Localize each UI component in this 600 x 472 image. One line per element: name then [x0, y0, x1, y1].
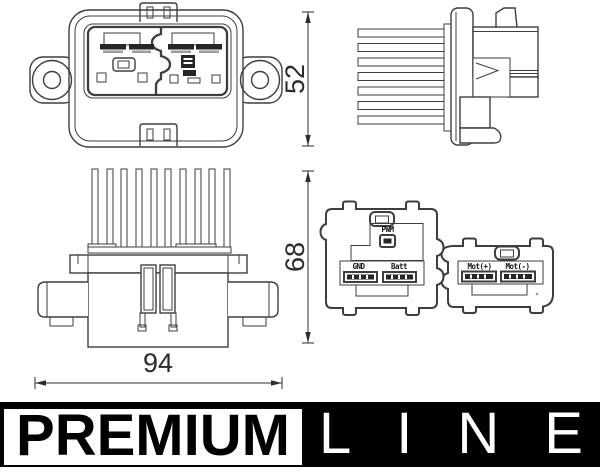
mot-minus-label: Mot(-): [505, 262, 529, 271]
mount-tab-left: [38, 282, 88, 317]
pwm-label: PWM: [381, 225, 394, 234]
front-body: [88, 273, 228, 347]
mount-tab-right: [228, 282, 278, 317]
gnd-label: GND: [352, 262, 365, 271]
batt-label: Batt: [391, 262, 407, 271]
premium-line-banner: PREMIUM LINE: [0, 402, 600, 467]
premium-text: PREMIUM: [16, 407, 290, 465]
dimension-52: 52: [280, 12, 314, 146]
side-view-drawing: [358, 8, 538, 145]
technical-drawing: 52: [0, 0, 600, 402]
dim-top-height-label: 52: [280, 64, 310, 94]
lower-boot: [460, 128, 501, 143]
premium-label-box: PREMIUM: [4, 409, 302, 465]
heatsink-fins-front: [92, 169, 230, 247]
dimension-94: 94: [35, 348, 282, 389]
dimension-68: 68: [280, 171, 314, 343]
line-text: LINE: [319, 405, 600, 463]
front-view-drawing: [38, 169, 278, 347]
latch-hook: [496, 8, 517, 27]
line-label-area: LINE: [302, 402, 600, 467]
dim-front-height-label: 68: [280, 242, 310, 272]
product-drawing-page: 52: [0, 0, 600, 472]
mot-plus-label: Mot(+): [467, 262, 491, 271]
motor-connector-outline: Mot(+) Mot(-): [442, 239, 554, 314]
top-view-drawing: [30, 3, 282, 147]
heatsink-fins-side: [358, 29, 444, 124]
bottom-view-drawing: Mot(+) Mot(-): [321, 202, 554, 316]
power-connector-outline: PWM GND Batt: [321, 202, 444, 316]
dim-width-label: 94: [143, 348, 173, 378]
